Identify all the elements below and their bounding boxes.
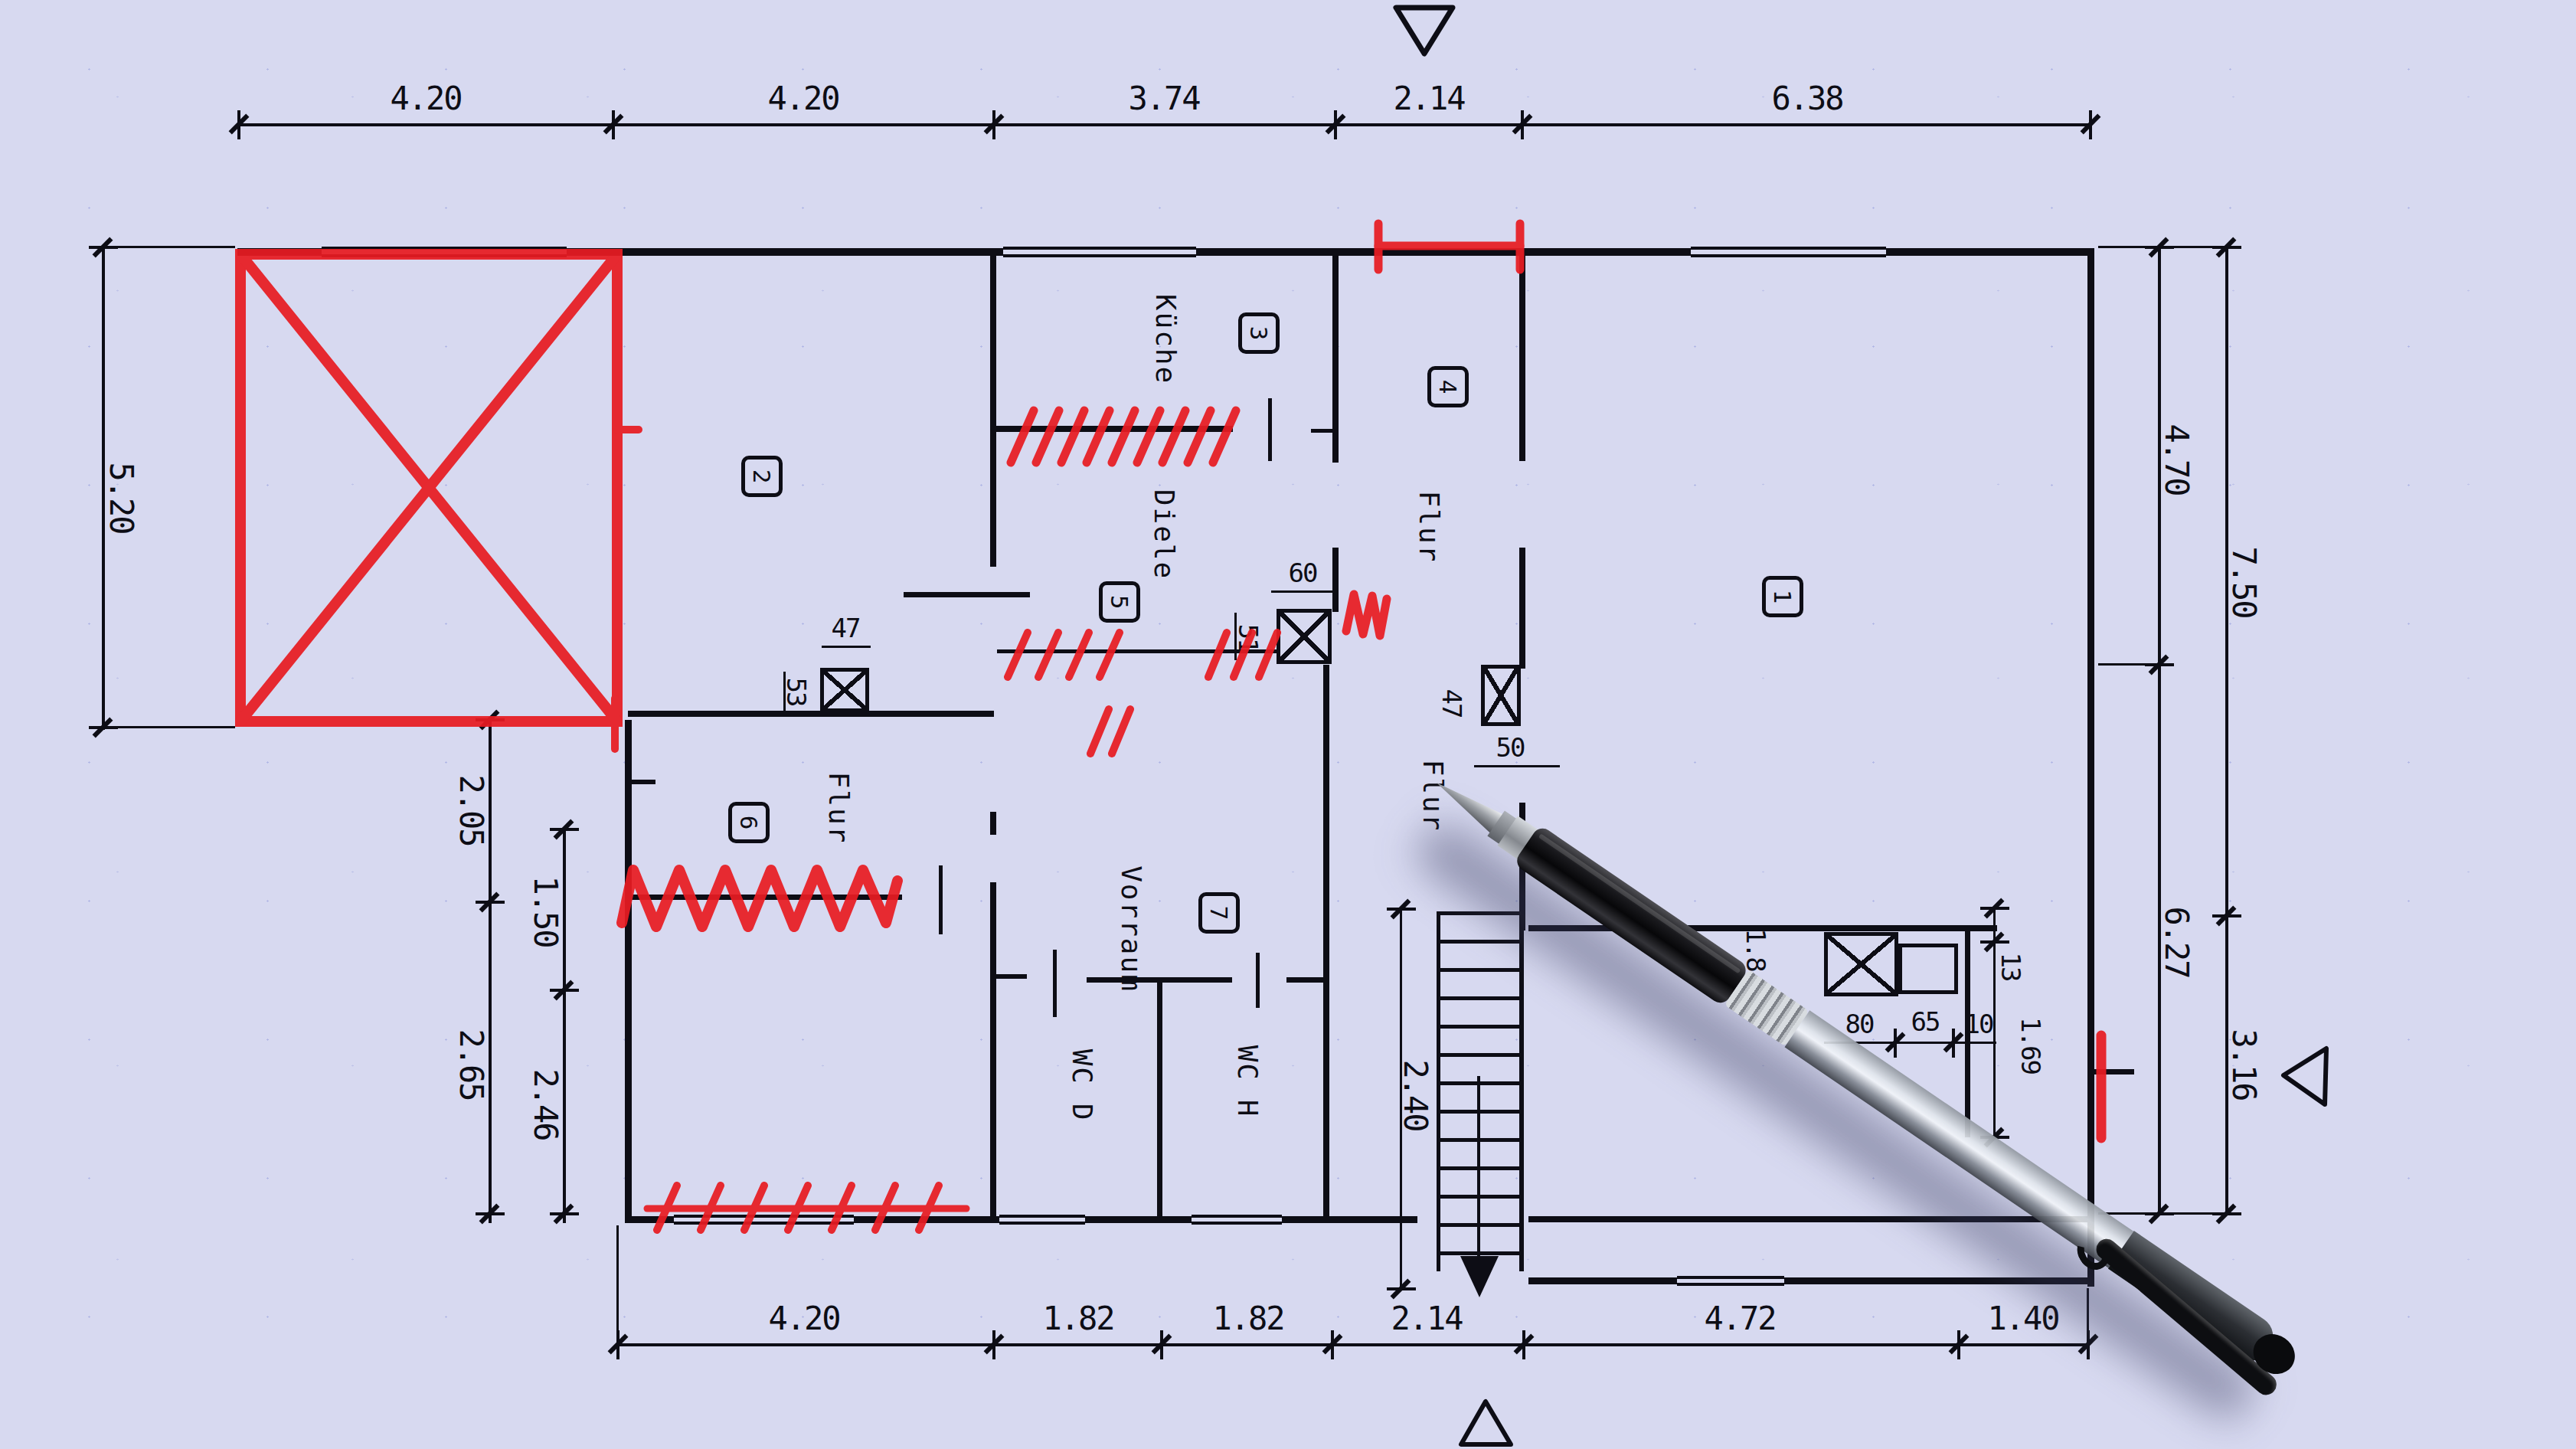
stair-arrow [1460, 1256, 1499, 1297]
red-dashed-bottom-wall [647, 1186, 966, 1230]
red-hatch-vorraum-wall [1008, 633, 1277, 754]
floor-plan-photo: 4.20 4.20 3.74 2.14 6.38 4.20 1.82 1.82 … [0, 0, 2576, 1449]
red-hatch-kueche-wall [1011, 410, 1236, 463]
triangle-marker-bottom [1461, 1402, 1511, 1444]
red-zigzag-flur-wall [622, 870, 897, 927]
red-squiggle-small [1346, 594, 1387, 636]
triangle-marker-right [2283, 1048, 2326, 1104]
triangle-marker-top [1396, 8, 1453, 54]
annotation-layer [0, 0, 2576, 1449]
